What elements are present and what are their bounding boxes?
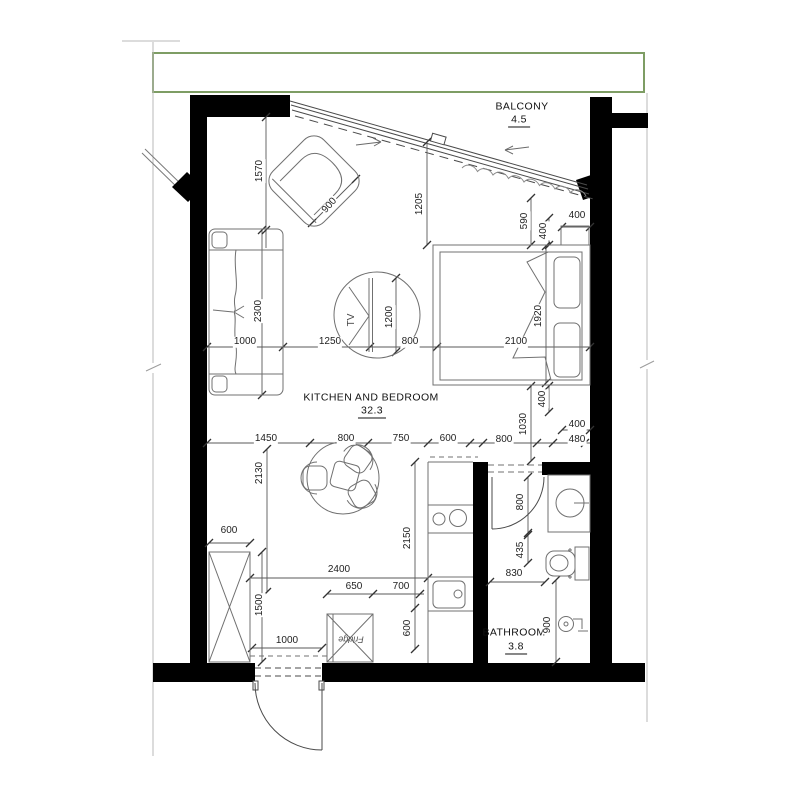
tv-label: TV bbox=[347, 313, 358, 328]
dim-2400: 2400 bbox=[327, 565, 351, 576]
dim-700: 700 bbox=[392, 582, 411, 593]
bathroom-door-opening bbox=[488, 465, 542, 472]
dim-590: 590 bbox=[520, 212, 531, 231]
dim-2100-bed: 2100 bbox=[504, 337, 528, 348]
slide-arrow-left-icon bbox=[505, 146, 529, 154]
dim-400-top: 400 bbox=[539, 222, 550, 241]
wall-bottom-left bbox=[153, 663, 255, 682]
dim-800-table: 800 bbox=[337, 434, 356, 445]
dim-2150: 2150 bbox=[403, 526, 414, 550]
dim-600-sink: 600 bbox=[403, 619, 414, 638]
dim-1570: 1570 bbox=[255, 159, 266, 183]
room-label-bathroom: BATHROOM bbox=[481, 627, 546, 638]
toilet-tank bbox=[575, 547, 589, 580]
dim-650: 650 bbox=[345, 582, 364, 593]
dim-435-toilet: 435 bbox=[516, 541, 527, 560]
dim-800-bathroom-door: 800 bbox=[516, 493, 527, 512]
dim-400-nightstand: 400 bbox=[568, 211, 587, 222]
kitchen-sink bbox=[433, 581, 465, 608]
wall-top-right-stub bbox=[612, 113, 648, 128]
tv-screen bbox=[369, 278, 373, 352]
dim-1500-wardrobe: 1500 bbox=[255, 593, 266, 617]
wall-bathroom-top bbox=[542, 462, 590, 475]
dining-table bbox=[307, 442, 379, 514]
dim-1000-sofa: 1000 bbox=[233, 337, 257, 348]
dim-480: 480 bbox=[568, 435, 587, 446]
armchair bbox=[263, 130, 365, 232]
kitchen-counter bbox=[428, 457, 478, 663]
shower-mixer-icon bbox=[559, 617, 574, 632]
slide-arrow-right-icon bbox=[356, 138, 381, 146]
dim-1205: 1205 bbox=[415, 192, 426, 216]
fridge-label: Fridge bbox=[337, 634, 365, 643]
dim-1450: 1450 bbox=[254, 434, 278, 445]
door-handle bbox=[430, 133, 446, 145]
cooktop-burner bbox=[433, 513, 445, 525]
bathroom-fixtures bbox=[488, 465, 590, 632]
dim-600-wardrobe: 600 bbox=[220, 526, 239, 537]
wall-top-left bbox=[190, 95, 290, 117]
dim-800-tv: 800 bbox=[401, 337, 420, 348]
dim-1000-entrance: 1000 bbox=[275, 636, 299, 647]
chair bbox=[338, 438, 379, 478]
dim-830: 830 bbox=[505, 569, 524, 580]
dim-600-counter: 600 bbox=[439, 434, 458, 445]
room-label-kitchen-bedroom: KITCHEN AND BEDROOM bbox=[302, 392, 439, 403]
nightstand bbox=[561, 226, 589, 245]
bed bbox=[433, 226, 590, 385]
room-area-bathroom: 3.8 bbox=[505, 641, 527, 654]
room-label-balcony: BALCONY bbox=[495, 101, 550, 112]
room-area-kitchen-bedroom: 32.3 bbox=[358, 405, 386, 418]
curtain-wave bbox=[462, 165, 586, 196]
pillow bbox=[554, 257, 580, 308]
dim-1030: 1030 bbox=[519, 412, 530, 436]
dim-750: 750 bbox=[392, 434, 411, 445]
entrance-door bbox=[253, 668, 324, 750]
room-area-balcony: 4.5 bbox=[508, 114, 530, 127]
dim-400-bed-bottom: 400 bbox=[568, 420, 587, 431]
dim-1250: 1250 bbox=[318, 337, 342, 348]
chair bbox=[301, 462, 327, 494]
cooktop-burner bbox=[450, 510, 467, 527]
dim-1200-tv: 1200 bbox=[385, 305, 396, 329]
dim-900-shower: 900 bbox=[543, 616, 554, 635]
pillow bbox=[554, 323, 580, 377]
floor-plan-page: BALCONY 4.5 KITCHEN AND BEDROOM 32.3 BAT… bbox=[0, 0, 800, 800]
dim-2300-sofa: 2300 bbox=[254, 299, 265, 323]
dim-400-below-bed: 400 bbox=[538, 390, 549, 409]
wardrobe bbox=[209, 552, 250, 662]
dim-1920-bed: 1920 bbox=[534, 304, 545, 328]
entrance-door-swing bbox=[255, 683, 322, 750]
chair bbox=[342, 476, 383, 515]
dim-2130: 2130 bbox=[255, 461, 266, 485]
dining-set bbox=[301, 438, 383, 514]
wall-bottom-right bbox=[322, 663, 645, 682]
balcony-sliding-door bbox=[290, 101, 597, 200]
dim-800-bathdoor-chain: 800 bbox=[495, 435, 514, 446]
sofa bbox=[209, 229, 283, 395]
